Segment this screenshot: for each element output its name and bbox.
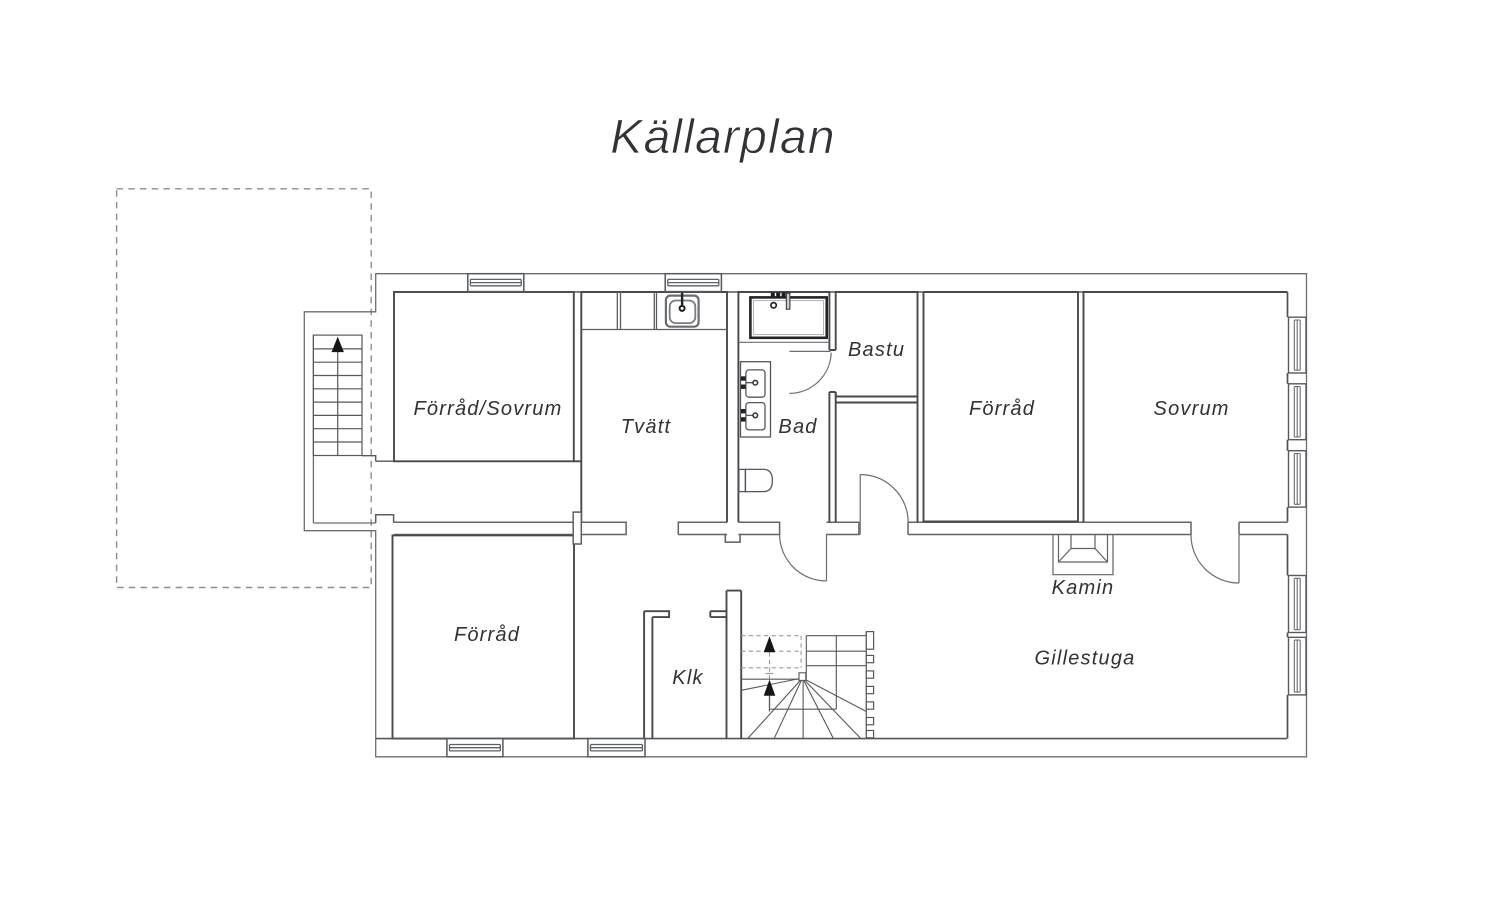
- svg-text:Källarplan: Källarplan: [610, 111, 835, 164]
- svg-text:Förråd/Sovrum: Förråd/Sovrum: [414, 398, 563, 420]
- svg-text:Bad: Bad: [778, 416, 817, 438]
- svg-text:Förråd: Förråd: [969, 398, 1035, 420]
- svg-text:Tvätt: Tvätt: [621, 416, 672, 438]
- svg-text:Bastu: Bastu: [848, 339, 905, 361]
- svg-text:Kamin: Kamin: [1052, 577, 1115, 599]
- svg-text:Gillestuga: Gillestuga: [1035, 648, 1136, 670]
- svg-text:Klk: Klk: [672, 667, 703, 689]
- svg-text:Sovrum: Sovrum: [1154, 398, 1230, 420]
- svg-text:Förråd: Förråd: [454, 624, 520, 646]
